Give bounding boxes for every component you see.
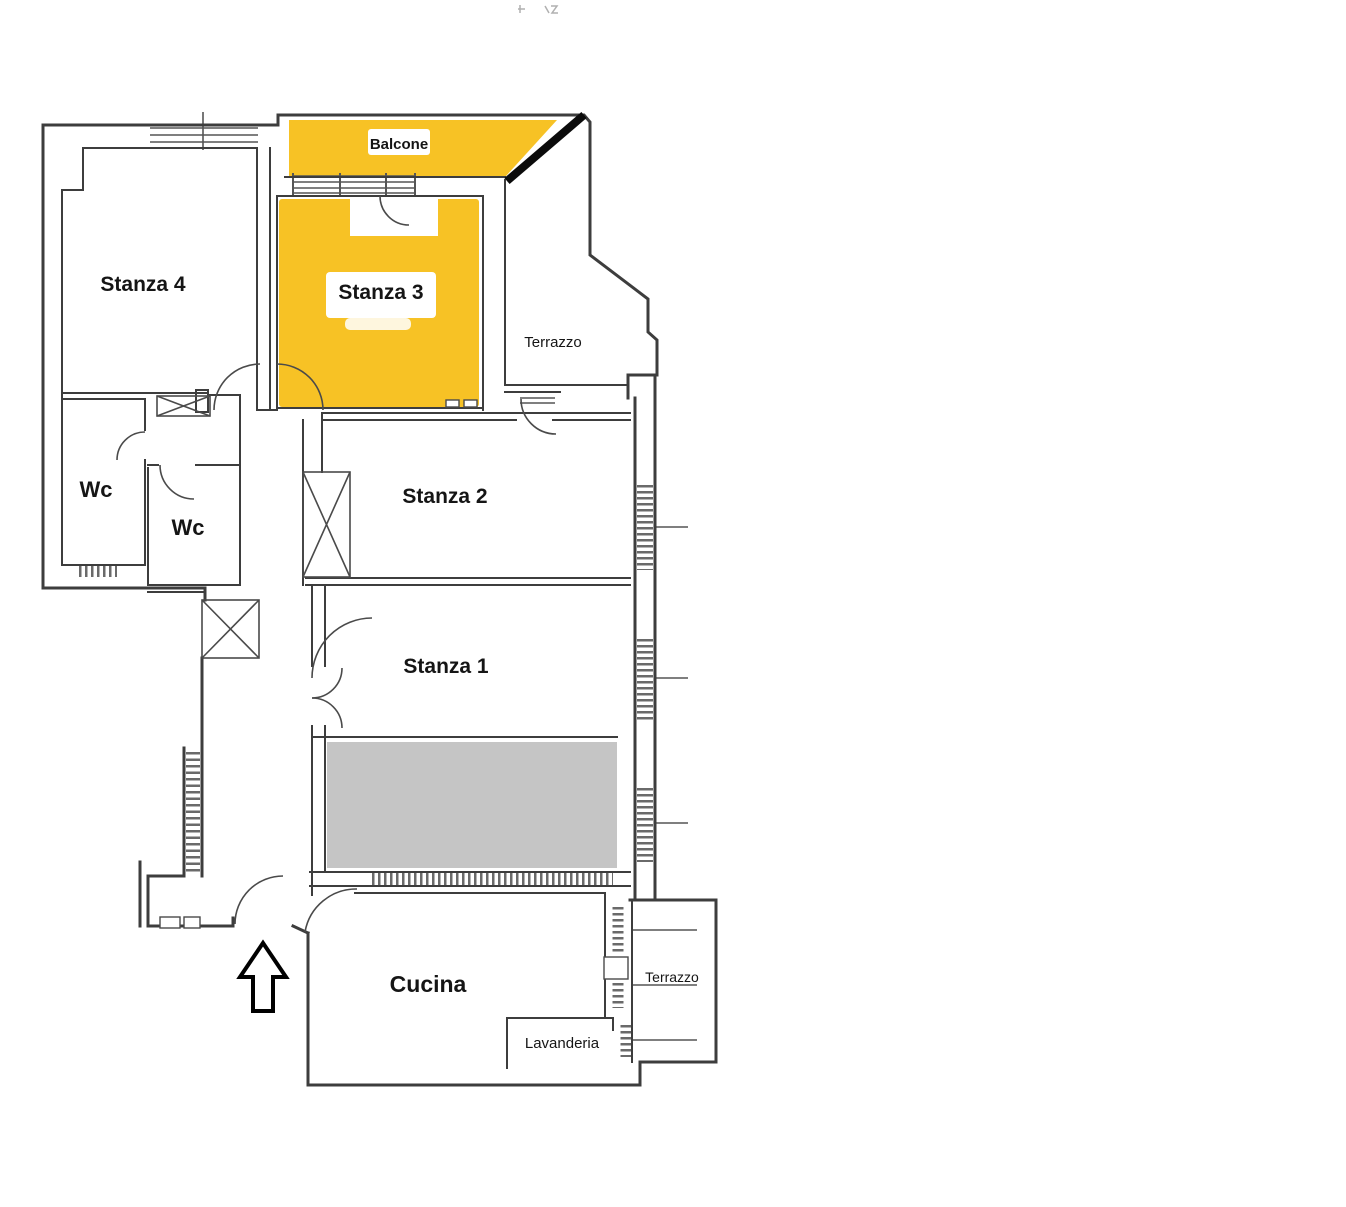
- room-label-balcone: Balcone: [370, 136, 428, 153]
- vestibule-fixture: [184, 917, 200, 928]
- room-label-lavanderia: Lavanderia: [525, 1035, 600, 1052]
- room-label-terrazzo-top: Terrazzo: [524, 334, 582, 351]
- threshold-mark: [446, 400, 459, 407]
- room-label-terrazzo-bottom: Terrazzo: [645, 969, 699, 985]
- room-label-stanza-2: Stanza 2: [402, 485, 487, 508]
- room-label-stanza-4: Stanza 4: [100, 273, 186, 296]
- room-label-stanza-3: Stanza 3: [338, 281, 423, 304]
- scan-artifacts: [518, 5, 558, 13]
- room-label-wc-inner: Wc: [172, 515, 205, 540]
- entrance-arrow-icon: [240, 943, 286, 1011]
- threshold-mark: [464, 400, 477, 407]
- floor-plan-page: Stanza 4 Stanza 3 Balcone Terrazzo Wc Wc…: [0, 0, 1346, 1207]
- stanza3-door-gap: [350, 196, 438, 236]
- boiler-box: [604, 957, 628, 979]
- vestibule-fixture: [160, 917, 180, 928]
- room-label-wc-left: Wc: [80, 477, 113, 502]
- covered-area: [327, 742, 617, 868]
- stanza3-white-smudge: [345, 318, 411, 330]
- room-label-stanza-1: Stanza 1: [403, 655, 489, 678]
- floor-plan-canvas: Stanza 4 Stanza 3 Balcone Terrazzo Wc Wc…: [0, 0, 1346, 1207]
- room-label-cucina: Cucina: [390, 971, 467, 997]
- highlight-areas: [279, 120, 557, 407]
